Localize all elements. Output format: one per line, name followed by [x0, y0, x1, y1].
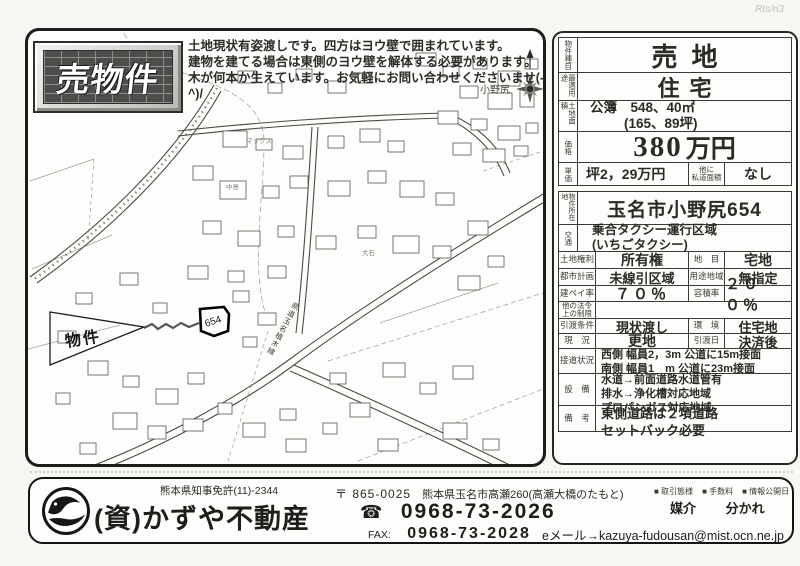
info-date-label: ■ 情報公開日	[742, 486, 789, 497]
place-makkusu: マックス	[246, 137, 272, 145]
remarks-line-1: 東側道路は２項道路	[601, 406, 718, 423]
row-transport: 交通 乗合タクシー運行区域 (いちごタクシー)	[559, 224, 791, 251]
detail-table: 物件所在地 玉名市小野尻654 交通 乗合タクシー運行区域 (いちごタクシー) …	[558, 191, 792, 432]
zoning-label: 用途地域	[688, 269, 725, 285]
row-location: 物件所在地 玉名市小野尻654	[559, 192, 791, 224]
license-number: 熊本県知事免許(11)-2344	[100, 483, 338, 498]
map-buildings	[56, 53, 538, 454]
price-unit: 万円	[686, 129, 736, 165]
deal-info-values: 媒介 分かれ	[670, 498, 765, 517]
fax-label: FAX:	[368, 529, 391, 541]
agency-bird-logo	[41, 486, 91, 536]
row-coverage-ratio: 建ペイ率 ７０％ 容積率 ２００％	[559, 285, 791, 301]
environment-label: 環 境	[688, 319, 725, 333]
unit-price-value: 坪2，29万円	[578, 163, 688, 185]
sale-banner-label: 売物件	[54, 53, 161, 101]
road-contact-line-1: 西側 幅員2，3m 公道に15m接面	[601, 349, 761, 363]
phone-number: 0968-73-2026	[401, 500, 556, 523]
location-value: 玉名市小野尻654	[578, 192, 791, 224]
postal-code: 〒 865-0025	[335, 487, 411, 501]
row-current-status: 現 況 更地 引渡日 決済後	[559, 333, 791, 348]
property-label: 物件	[64, 327, 103, 351]
facilities-line-2: 排水→浄化槽対応地域	[601, 388, 711, 402]
property-type-value: 売地	[578, 38, 791, 72]
facilities-label: 設 備	[559, 374, 596, 405]
deal-type-value: 媒介	[670, 501, 696, 516]
row-other-laws: 他の法令 上の制限	[559, 301, 791, 318]
best-use-label: 最適用途	[559, 73, 578, 100]
road-contact-value: 西側 幅員2，3m 公道に15m接面 南側 幅員1 m 公道に23m接面	[596, 349, 791, 373]
land-area-value: 公簿 548、40㎡ (165、89坪)	[578, 101, 791, 131]
location-label: 物件所在地	[559, 192, 578, 224]
sale-banner: 売物件	[33, 41, 183, 113]
row-property-type: 物件種目 売地	[559, 38, 791, 72]
private-road-value: なし	[725, 163, 791, 185]
row-price: 価格 380 万円	[559, 131, 791, 162]
row-unit-price: 単価 坪2，29万円 他に 私道面積 なし	[559, 162, 791, 185]
property-notice: 土地現状有姿渡しです。四方はヨウ壁で囲まれています。 建物を建てる場合は東側のヨ…	[188, 38, 548, 102]
row-facilities: 設 備 水道→前面道路水道管有 排水→浄化槽対応地域 プロパンガス対応地域	[559, 373, 791, 405]
price-number: 380	[633, 131, 683, 164]
coverage-label: 建ペイ率	[559, 286, 596, 301]
transport-label: 交通	[559, 225, 578, 251]
private-road-label: 他に 私道面積	[688, 163, 725, 185]
road-name-label: 県道玉名植木線	[265, 300, 301, 357]
land-category-label: 地 目	[688, 252, 725, 268]
transport-line-1: 乗合タクシー運行区域	[592, 223, 717, 238]
land-category-value: 宅地	[725, 252, 791, 268]
agency-footer: 熊本県知事免許(11)-2344 (資)かずや不動産 〒 865-0025 熊本…	[28, 477, 794, 544]
remarks-label: 備 考	[559, 406, 596, 431]
price-label: 価格	[559, 132, 578, 162]
row-road-contact: 接道状況 西側 幅員2，3m 公道に15m接面 南側 幅員1 m 公道に23m接…	[559, 348, 791, 373]
handwritten-note: Rts/n3	[755, 4, 784, 15]
property-type-label: 物件種目	[559, 38, 578, 72]
summary-table: 物件種目 売地 最適用途 住宅 土地面積 公簿 548、40㎡ (165、89坪…	[558, 37, 792, 186]
remarks-line-2: セットバック必要	[601, 423, 705, 440]
perforation-line	[30, 471, 793, 473]
facilities-value: 水道→前面道路水道管有 排水→浄化槽対応地域 プロパンガス対応地域	[596, 374, 791, 405]
best-use-value: 住宅	[578, 73, 791, 100]
fax-line: FAX: 0968-73-2028	[368, 525, 531, 543]
city-planning-label: 都市計画	[559, 269, 596, 285]
transport-value: 乗合タクシー運行区域 (いちごタクシー)	[578, 225, 791, 251]
road-contact-label: 接道状況	[559, 349, 596, 373]
deal-info-headers: ■ 取引態様 ■ 手数料 ■ 情報公開日	[654, 486, 789, 497]
place-nakashima: 中島	[226, 182, 240, 191]
property-detail-panel: 物件種目 売地 最適用途 住宅 土地面積 公簿 548、40㎡ (165、89坪…	[552, 31, 798, 465]
row-remarks: 備 考 東側道路は２項道路 セットバック必要	[559, 405, 791, 431]
map-roads	[30, 85, 543, 464]
private-road-label-2: 私道面積	[692, 174, 722, 182]
company-name: (資)かずや不動産	[94, 497, 310, 536]
handover-condition-label: 引渡条件	[559, 319, 596, 333]
other-laws-label: 他の法令 上の制限	[559, 302, 596, 318]
email-line: eメール→kazuya-fudousan@mist.ocn.ne.jp	[542, 525, 784, 544]
remarks-value: 東側道路は２項道路 セットバック必要	[596, 406, 791, 431]
fax-number: 0968-73-2028	[407, 525, 531, 542]
place-oishi: 大石	[362, 248, 376, 257]
handover-date-label: 引渡日	[688, 334, 725, 348]
land-right-label: 土地権利	[559, 252, 596, 268]
notice-line-2: 建物を建てる場合は東側のヨウ壁を解体する必要があります。	[188, 54, 548, 70]
land-area-label: 土地面積	[559, 101, 578, 131]
floor-area-value: ２００％	[725, 286, 791, 301]
row-land-area: 土地面積 公簿 548、40㎡ (165、89坪)	[559, 100, 791, 131]
land-right-value: 所有権	[596, 252, 688, 268]
row-land-right: 土地権利 所有権 地 目 宅地	[559, 251, 791, 268]
unit-price-label: 単価	[559, 163, 578, 185]
phone-icon: ☎	[360, 502, 382, 522]
floor-area-label: 容積率	[688, 286, 725, 301]
handover-date-value: 決済後	[725, 334, 791, 348]
deal-type-label: ■ 取引態様	[654, 486, 693, 497]
current-status-value: 更地	[596, 334, 688, 348]
notice-line-1: 土地現状有姿渡しです。四方はヨウ壁で囲まれています。	[188, 38, 548, 54]
row-best-use: 最適用途 住宅	[559, 72, 791, 100]
price-value: 380 万円	[578, 132, 791, 162]
fee-label: ■ 手数料	[702, 486, 733, 497]
notice-line-3: 木が何本か生えています。お気軽にお問い合わせくださいませ(-^)/	[188, 70, 548, 102]
current-status-label: 現 況	[559, 334, 596, 348]
coverage-value: ７０％	[596, 286, 688, 301]
other-laws-label-2: 上の制限	[562, 310, 592, 318]
land-area-registered: 公簿 548、40㎡	[590, 100, 695, 116]
phone-line: ☎ 0968-73-2026	[360, 500, 556, 524]
facilities-line-1: 水道→前面道路水道管有	[601, 374, 722, 388]
fee-value: 分かれ	[726, 501, 765, 516]
sale-banner-brick-bg: 売物件	[43, 50, 173, 104]
